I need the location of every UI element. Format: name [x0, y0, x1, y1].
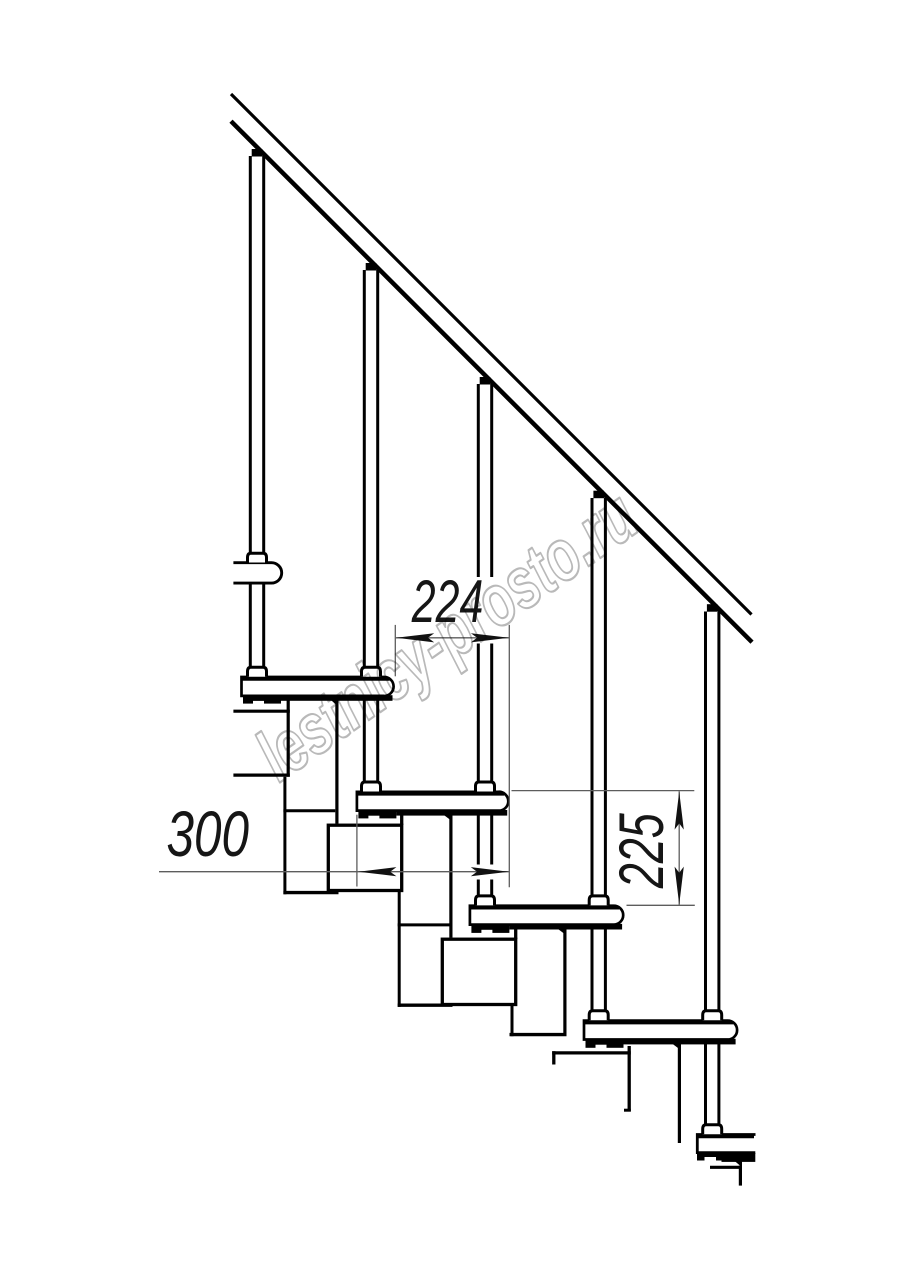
svg-text:300: 300	[167, 799, 250, 871]
svg-text:225: 225	[605, 813, 676, 889]
svg-text:lestnicy-prosto.ru: lestnicy-prosto.ru	[241, 475, 651, 796]
